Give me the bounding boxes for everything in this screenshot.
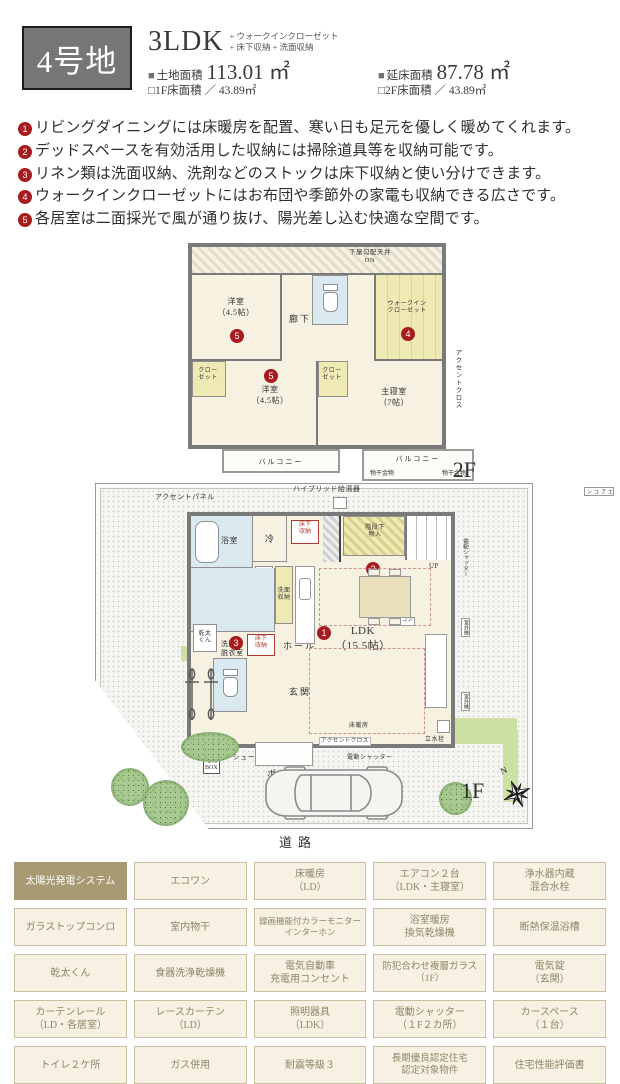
staircase	[405, 516, 451, 560]
walk-in-closet: ウォークイン クローゼット 4	[374, 275, 442, 361]
feature-text: デッドスペースを有効活用した収納には掃除道具等を収納可能です。	[35, 143, 503, 160]
lot-number-badge: 4号地	[22, 26, 132, 90]
filled-square-icon: ■	[378, 70, 385, 82]
equipment-cell-solar: 太陽光発電システム	[14, 862, 127, 900]
sofa-icon	[425, 634, 447, 708]
fridge-label: 冷	[265, 532, 274, 545]
equipment-cell: カーテンレール （LD・各居室）	[14, 1000, 127, 1038]
floor1-area: □1F床面積 ／ 43.89㎡	[148, 82, 256, 98]
gas-dryer-box: 乾太 くん	[193, 624, 217, 652]
bullet-number-icon: 3	[18, 168, 32, 182]
closet-b-label: クロー ゼット	[320, 368, 344, 382]
bicycles-icon	[181, 664, 223, 726]
floor-plan-2f: 下屋勾配天井 DN 洋室 （4.5帖） 5 廊下 ウォークイン クローゼット 4…	[170, 233, 476, 483]
bathroom-label: 浴室	[221, 536, 238, 547]
kitchen-sink-icon	[299, 578, 311, 600]
feature-item: 3 リネン類は洗面収納、洗剤などのストックは床下収納と使い分けできます。	[18, 166, 612, 183]
washroom-storage: 洗面 収納	[275, 566, 293, 624]
washroom: 乾太 くん 洗面・ 脱衣室	[191, 568, 275, 632]
land-area-label: 土地面積	[157, 67, 203, 83]
equipment-cell: 防犯合わせ複層ガラス （1F）	[373, 954, 486, 992]
toilet-tank-icon	[223, 669, 238, 676]
equipment-cell: トイレ２ケ所	[14, 1046, 127, 1084]
bathroom: 浴室	[191, 516, 253, 568]
marker-5: 5	[264, 369, 278, 383]
entrance-label: 玄関	[289, 686, 311, 698]
electric-shutter-label-bottom: 電動シャッター	[347, 754, 393, 762]
feature-text: ウォークインクローゼットにはお布団や季節外の家電も収納できる広さです。	[35, 188, 565, 205]
dining-table-icon	[359, 576, 411, 618]
outdoor-faucet-label: 立水栓	[425, 736, 445, 744]
bathtub-icon	[195, 521, 219, 563]
equipment-cell: 室内物干	[134, 908, 247, 946]
equipment-cell: 住宅性能評価書	[493, 1046, 606, 1084]
equipment-cell: レースカーテン （LD）	[134, 1000, 247, 1038]
corridor-label: 廊下	[289, 313, 311, 325]
bullet-number-icon: 2	[18, 145, 32, 159]
water-heater-label: ハイブリッド給湯器	[293, 485, 360, 494]
marker-4: 4	[401, 327, 415, 341]
equipment-cell: 電気錠 （玄関）	[493, 954, 606, 992]
closet-a-label: クロー ゼット	[195, 368, 221, 382]
balcony-left: バルコニー	[222, 449, 340, 473]
aircon-label: エアコン	[584, 487, 614, 496]
sloped-ceiling-area: 下屋勾配天井 DN	[192, 247, 442, 275]
under-stair-storage: 階段下 物入	[343, 516, 405, 556]
feature-item: 4 ウォークインクローゼットにはお布団や季節外の家電も収納できる広さです。	[18, 188, 612, 205]
toilet-room-2f	[312, 275, 348, 325]
feature-item: 5 各居室は二面採光で風が通り抜け、陽光差し込む快適な空間です。	[18, 211, 612, 228]
accent-cloth-label-1f: アクセントクロス	[319, 737, 371, 746]
equipment-cell: 食器洗浄乾燥機	[134, 954, 247, 992]
equipment-cell: 浄水器内蔵 混合水栓	[493, 862, 606, 900]
equipment-cell: ガス併用	[134, 1046, 247, 1084]
shrub-icon	[181, 732, 239, 762]
compass-north-icon: N	[493, 764, 537, 816]
lot-number-label: 4号地	[37, 36, 118, 81]
bedroom-1-label: 洋室 （4.5帖）	[204, 297, 268, 319]
chair-icon	[389, 569, 401, 576]
feature-text: 各居室は二面採光で風が通り抜け、陽光差し込む快適な空間です。	[35, 211, 489, 228]
feature-item: 2 デッドスペースを有効活用した収納には掃除道具等を収納可能です。	[18, 143, 612, 160]
equipment-cell: エコワン	[134, 862, 247, 900]
walk-in-closet-label: ウォークイン クローゼット	[378, 301, 436, 315]
master-bedroom-label: 主寝室 （7帖）	[362, 387, 426, 409]
flyer-page: { "header": { "lot": "4号地", "type": "3LD…	[0, 0, 620, 1083]
equipment-cell: ガラストップコンロ	[14, 908, 127, 946]
plan-type: 3LDK + ウォークインクローゼット + 床下収納 + 洗面収納	[148, 28, 338, 56]
water-heater-unit	[333, 497, 347, 509]
hanger-fitting-label: 物干金物	[370, 468, 394, 477]
sloped-ceiling-label: 下屋勾配天井 DN	[300, 249, 440, 265]
electric-shutter-label-right: 電動シャッター	[461, 538, 469, 577]
building-outline-2f: 下屋勾配天井 DN 洋室 （4.5帖） 5 廊下 ウォークイン クローゼット 4…	[188, 243, 446, 449]
underfloor-storage-kitchen: 床下 収納	[291, 520, 319, 544]
equipment-table: 太陽光発電システム エコワン 床暖房 （LD） エアコン２台 （LDK・主寝室）…	[14, 862, 606, 1084]
balcony-left-label: バルコニー	[224, 457, 338, 467]
floor2-area: □2F床面積 ／ 43.89㎡	[378, 82, 486, 98]
outdoor-faucet-icon	[437, 720, 450, 733]
feature-list: 1 リビングダイニングには床暖房を配置、寒い日も足元を優しく暖めてくれます。 2…	[18, 120, 612, 234]
accent-panel-label: アクセントパネル	[155, 493, 215, 502]
kitchen-wall	[323, 516, 341, 562]
plan-type-label: 3LDK	[148, 28, 224, 56]
fridge-space: 冷	[253, 516, 287, 562]
toilet-icon	[323, 292, 338, 312]
building-outline-1f: 浴室 冷 床下 収納 階段下 物入 2 UP PS 洗面 収納 乾太 くん 洗面…	[187, 512, 455, 748]
accent-cloth-label-2f: アクセントクロス	[452, 349, 462, 409]
car-icon	[263, 766, 405, 820]
equipment-cell: 浴室暖房 換気乾燥機	[373, 908, 486, 946]
master-bedroom: 主寝室 （7帖） エアコン	[348, 361, 442, 445]
porch-area	[255, 742, 313, 766]
equipment-cell: 電動シャッター （１F２カ所）	[373, 1000, 486, 1038]
marker-1: 1	[317, 626, 331, 640]
equipment-cell: エアコン２台 （LDK・主寝室）	[373, 862, 486, 900]
gas-dryer-label: 乾太 くん	[198, 631, 211, 645]
compass-n-label: N	[499, 764, 509, 776]
underfloor-storage-washroom: 床下 収納	[247, 634, 275, 656]
total-floor-area-label: 延床面積	[387, 67, 433, 83]
closet-a: クロー ゼット	[192, 361, 226, 397]
feature-item: 1 リビングダイニングには床暖房を配置、寒い日も足元を優しく暖めてくれます。	[18, 120, 612, 137]
chair-icon	[368, 569, 380, 576]
toilet-tank-icon	[323, 284, 338, 291]
equipment-cell: 乾太くん	[14, 954, 127, 992]
equipment-cell: カースペース （１台）	[493, 1000, 606, 1038]
under-stair-storage-label: 階段下 物入	[356, 525, 394, 539]
feature-text: リネン類は洗面収納、洗剤などのストックは床下収納と使い分けできます。	[35, 166, 550, 183]
outdoor-unit-label: 室外機	[461, 618, 470, 637]
tree-icon	[143, 780, 189, 826]
equipment-cell: 長期優良認定住宅 認定対象物件	[373, 1046, 486, 1084]
equipment-cell: 照明器具 （LDK）	[254, 1000, 367, 1038]
floor-tag-1f: 1F	[461, 778, 484, 804]
chair-icon	[389, 618, 401, 625]
feature-text: リビングダイニングには床暖房を配置、寒い日も足元を優しく暖めてくれます。	[35, 120, 580, 137]
washroom-storage-label: 洗面 収納	[277, 588, 290, 602]
equipment-cell: 断熱保温浴槽	[493, 908, 606, 946]
road-label: 道路	[279, 834, 317, 852]
equipment-cell: 床暖房 （LD）	[254, 862, 367, 900]
filled-square-icon: ■	[148, 70, 155, 82]
bullet-number-icon: 1	[18, 122, 32, 136]
equipment-cell: 耐震等級３	[254, 1046, 367, 1084]
marker-3: 3	[229, 636, 243, 650]
outdoor-unit-label: 室外機	[461, 692, 470, 711]
bullet-number-icon: 4	[18, 190, 32, 204]
equipment-cell: 電気自動車 充電用コンセント	[254, 954, 367, 992]
floor-plan-1f: アクセントパネル ハイブリッド給湯器 浴室 冷 床下 収納 階段下 物入 2 U…	[95, 480, 555, 860]
bedroom-2-label: 洋室 （4.5帖）	[238, 385, 302, 407]
plan-type-extras: + ウォークインクローゼット + 床下収納 + 洗面収納	[230, 31, 339, 54]
bullet-number-icon: 5	[18, 213, 32, 227]
bedroom-2: 5 洋室 （4.5帖）	[226, 361, 318, 445]
closet-b: クロー ゼット	[318, 361, 348, 397]
bedroom-1: 洋室 （4.5帖） 5	[192, 275, 282, 361]
toilet-icon	[223, 677, 238, 697]
marker-5: 5	[230, 329, 244, 343]
floor-heating-label: 床暖房	[349, 722, 369, 730]
equipment-cell: 録画機能付カラーモニター インターホン	[254, 908, 367, 946]
